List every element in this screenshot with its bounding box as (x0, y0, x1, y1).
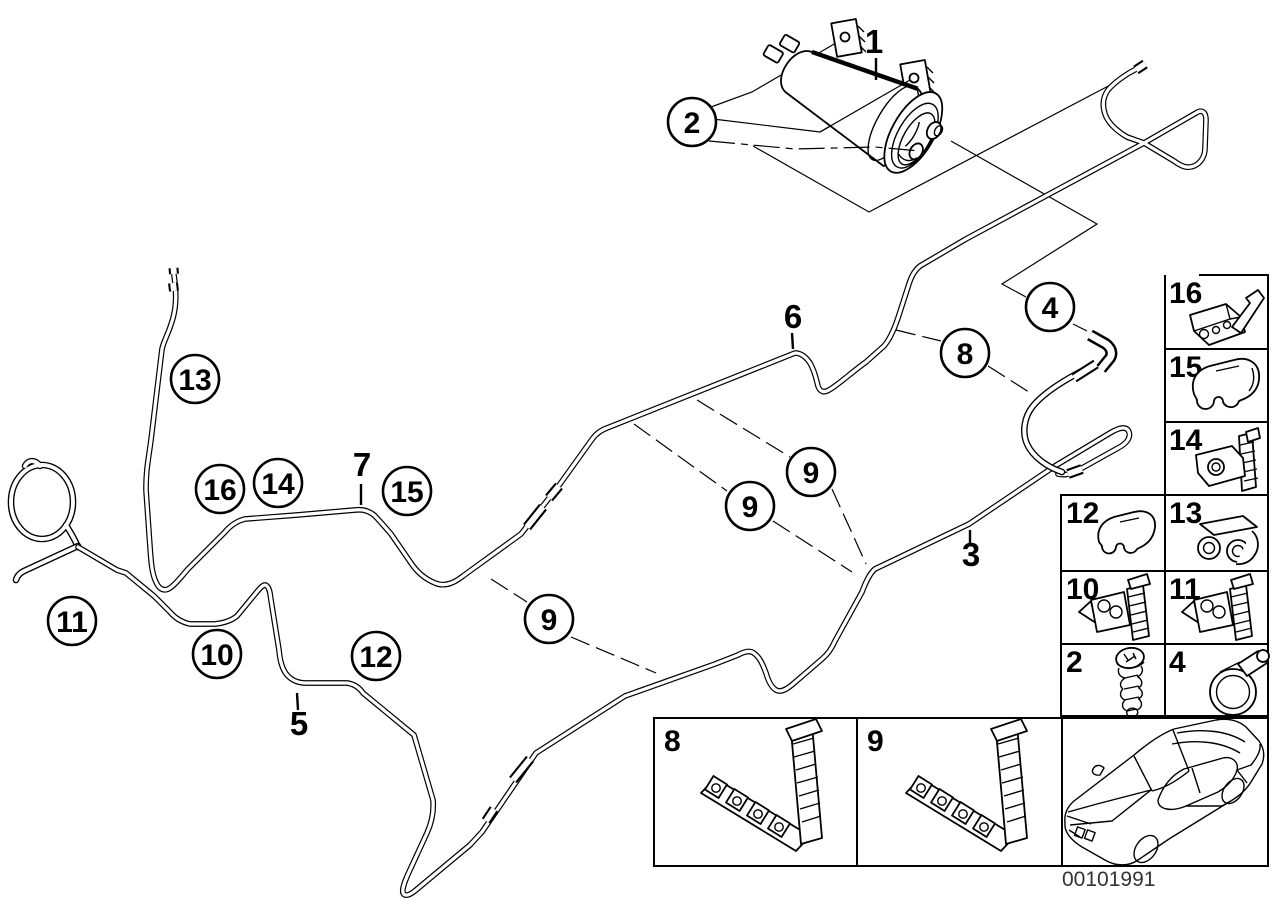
svg-text:9: 9 (867, 725, 884, 758)
svg-text:9: 9 (803, 457, 820, 490)
svg-text:9: 9 (541, 604, 558, 637)
svg-text:7: 7 (353, 446, 371, 483)
svg-text:13: 13 (178, 364, 211, 397)
svg-text:00101991: 00101991 (1062, 868, 1155, 891)
svg-text:16: 16 (203, 474, 236, 507)
svg-text:15: 15 (390, 476, 423, 509)
svg-text:14: 14 (1169, 424, 1203, 457)
svg-text:12: 12 (1066, 497, 1099, 530)
svg-text:1: 1 (865, 23, 883, 60)
svg-text:4: 4 (1042, 292, 1059, 325)
svg-text:16: 16 (1169, 277, 1202, 310)
svg-text:8: 8 (957, 338, 974, 371)
svg-text:6: 6 (784, 298, 802, 335)
svg-text:2: 2 (1066, 646, 1083, 679)
svg-text:9: 9 (742, 491, 759, 524)
svg-text:12: 12 (359, 641, 392, 674)
svg-text:11: 11 (56, 606, 88, 639)
svg-text:10: 10 (200, 639, 233, 672)
svg-text:4: 4 (1169, 646, 1186, 679)
svg-text:5: 5 (290, 705, 308, 742)
svg-text:14: 14 (261, 468, 295, 501)
svg-text:13: 13 (1169, 497, 1202, 530)
svg-text:2: 2 (684, 107, 701, 140)
svg-text:8: 8 (664, 725, 681, 758)
